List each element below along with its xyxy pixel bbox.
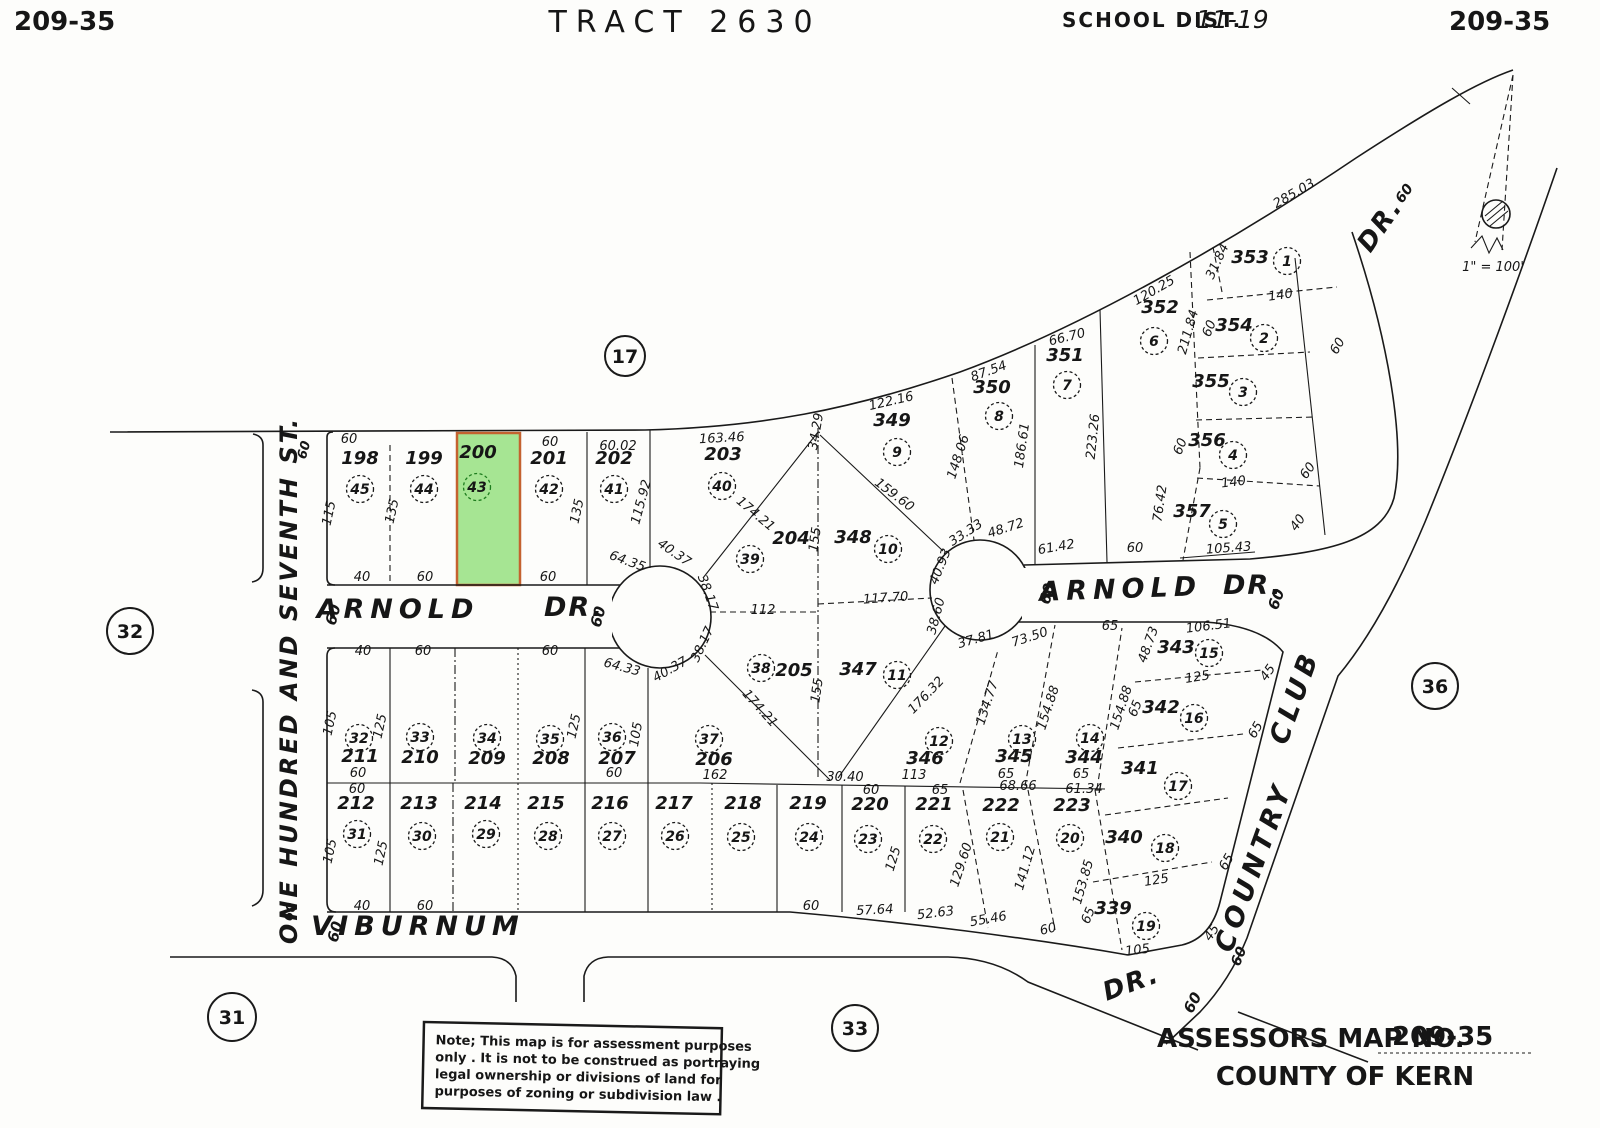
parcel-216-number: 216 (591, 793, 629, 814)
dimension-label: 115.92 (628, 478, 654, 526)
dimension-label: 140 (1220, 474, 1246, 492)
dimension-label: 64.35 (607, 548, 647, 575)
street-label-club: CLUB (1264, 646, 1327, 749)
section-marker-31-label: 31 (219, 1007, 245, 1029)
parcel-212-number: 212 (337, 793, 375, 814)
dimension-label: 125 (371, 713, 391, 740)
dimension-label: 60 (1038, 920, 1058, 939)
lot-36-label: 36 (602, 730, 622, 746)
dimension-label: 154.88 (1035, 684, 1063, 732)
dimension-label: 40 (354, 570, 371, 585)
parcel-200-number[interactable]: 200 (459, 442, 497, 463)
section-marker-17-label: 17 (612, 346, 638, 368)
parcel-214-number: 214 (464, 793, 502, 814)
dimension-label: 60 (415, 644, 432, 659)
lot-21-label: 21 (990, 830, 1009, 846)
dimension-label: 125 (883, 845, 905, 873)
dimension-label: 174.21 (733, 494, 777, 535)
parcel-223-number: 223 (1053, 795, 1091, 816)
tract-boundary (110, 70, 1513, 432)
parcel-352-number: 352 (1141, 297, 1179, 318)
dimension-label: 162 (703, 768, 728, 783)
dimension-label: 40 (1287, 512, 1309, 534)
dimension-label: 106.51 (1185, 616, 1232, 636)
street-label-one-hundred-and-seventh-st-: ONE HUNDRED AND SEVENTH ST. (275, 416, 303, 944)
section-marker-36-label: 36 (1422, 676, 1448, 698)
lot-14-label: 14 (1080, 731, 1099, 747)
lot-45-label: 45 (349, 482, 370, 498)
section-marker-33-label: 33 (842, 1018, 868, 1040)
lot-1-label: 1 (1282, 254, 1292, 270)
lot-20-label: 20 (1060, 831, 1080, 847)
street-label-dr-: DR. (1099, 959, 1164, 1007)
parcel-351-number: 351 (1046, 345, 1084, 366)
parcel-201-number: 201 (530, 448, 568, 469)
parcel-349-number: 349 (873, 410, 911, 431)
parcel-206-number: 206 (695, 749, 733, 770)
parcel-341-number: 341 (1121, 758, 1159, 779)
dimension-label: 60 (803, 899, 820, 914)
lot-9-label: 9 (892, 445, 902, 461)
dimension-label: 148.06 (945, 433, 973, 481)
dimension-label: 40 (355, 644, 372, 659)
dimension-label: 38.17 (694, 573, 721, 614)
lot-16-label: 16 (1184, 711, 1204, 727)
dimension-label: 37.81 (956, 627, 996, 652)
lot-15-label: 15 (1199, 646, 1219, 662)
dimension-label: 34.29 (806, 412, 827, 451)
lot-17-label: 17 (1168, 779, 1188, 795)
dimension-label: 60 (540, 570, 557, 585)
parcel-353-number: 353 (1231, 247, 1269, 268)
lot-34-label: 34 (477, 731, 496, 747)
dimension-label: 68.66 (999, 779, 1036, 794)
dimension-label: 30.40 (826, 770, 863, 785)
lot-2-label: 2 (1259, 331, 1269, 347)
lot-10-label: 10 (878, 542, 898, 558)
lot-32-label: 32 (349, 731, 368, 747)
parcel-208-number: 208 (532, 748, 570, 769)
parcel-210-number: 210 (401, 747, 439, 768)
assessors-map-value: 209-35 (1392, 1022, 1493, 1052)
lot-18-label: 18 (1155, 841, 1175, 857)
road-viburnum-south (170, 957, 1198, 1050)
dimension-label: 105.43 (1206, 539, 1252, 557)
dimension-label: 38.60 (925, 596, 949, 636)
header-map-no-left: 209-35 (14, 7, 115, 37)
dimension-label: 135 (568, 498, 588, 525)
lot-25-label: 25 (731, 830, 751, 846)
scale-label: 1" = 100' (1462, 260, 1524, 275)
header-map-no-right: 209-35 (1449, 7, 1550, 37)
parcel-340-number: 340 (1105, 827, 1143, 848)
road-arnold-east-top (1024, 232, 1398, 565)
lot-26-label: 26 (665, 829, 685, 845)
parcel-354-number: 354 (1215, 315, 1253, 336)
lot-30-label: 30 (412, 829, 432, 845)
parcel-219-number: 219 (789, 793, 827, 814)
lot-11-label: 11 (887, 668, 906, 684)
parcel-222-number: 222 (982, 795, 1020, 816)
parcel-217-number: 217 (655, 793, 693, 814)
dimension-label: 76.42 (1151, 484, 1171, 523)
parcel-339-number: 339 (1094, 898, 1132, 919)
dimension-label: 211.84 (1175, 308, 1202, 356)
parcel-209-number: 209 (468, 748, 506, 769)
parcel-220-number: 220 (851, 794, 889, 815)
lot-19-label: 19 (1136, 919, 1156, 935)
lot-39-label: 39 (740, 552, 760, 568)
lot-31-label: 31 (347, 827, 366, 843)
parcel-356-number: 356 (1188, 430, 1226, 451)
parcel-199-number: 199 (405, 448, 443, 469)
lot-40-label: 40 (711, 479, 732, 495)
parcel-346-number: 346 (906, 748, 944, 769)
lot-6-label: 6 (1149, 334, 1159, 350)
section-marker-32-label: 32 (117, 621, 143, 643)
lot-28-label: 28 (538, 829, 558, 845)
dimension-label: 38.17 (688, 624, 718, 665)
dimension-label: 60 (1327, 335, 1348, 357)
dimension-label: 61.42 (1037, 537, 1076, 558)
map-svg: 1" = 100' 209-35 TRACT 2630 SCHOOL DIST.… (0, 0, 1600, 1128)
dimension-label: 285.03 (1271, 176, 1318, 212)
street-label-60: 60 (295, 439, 314, 460)
lot-44-label: 44 (413, 482, 433, 498)
street-label-60: 60 (1180, 989, 1206, 1016)
dimension-label: 176.32 (905, 674, 947, 717)
dimension-label: 125 (565, 713, 585, 740)
lot-23-label: 23 (858, 832, 877, 848)
parcel-205-number: 205 (775, 660, 813, 681)
dimension-label: 55.46 (969, 909, 1008, 930)
dimension-label: 174.21 (739, 687, 781, 731)
parcel-347-number: 347 (839, 659, 877, 680)
dimension-label: 60 (341, 432, 358, 447)
lot-8-label: 8 (994, 409, 1004, 425)
dimension-label: 31.84 (1203, 241, 1232, 281)
dimension-label: 125 (1143, 871, 1170, 890)
parcel-343-number: 343 (1157, 637, 1195, 658)
parcel-348-number: 348 (834, 527, 872, 548)
dimension-label: 105 (1124, 942, 1150, 960)
dimension-label: 60 (350, 766, 367, 781)
dimension-label: 40.37 (650, 654, 690, 686)
dimension-label: 115 (320, 500, 340, 527)
dimension-label: 155 (808, 677, 826, 704)
lot-13-label: 13 (1012, 732, 1031, 748)
dimension-label: 159.60 (871, 476, 916, 515)
parcel-221-number: 221 (915, 794, 953, 815)
dimension-label: 33.33 (946, 517, 985, 550)
dimension-label: 64.33 (602, 656, 642, 680)
dimension-label: 73.50 (1010, 625, 1050, 651)
dimension-label: 52.63 (916, 904, 955, 923)
lot-38-label: 38 (751, 661, 771, 677)
parcel-342-number: 342 (1142, 697, 1180, 718)
parcel-202-number: 202 (595, 448, 633, 469)
lot-35-label: 35 (540, 732, 560, 748)
dimension-label: 135 (383, 498, 403, 525)
dimension-label: 65 (1102, 619, 1119, 634)
parcel-213-number: 213 (400, 793, 438, 814)
lot-37-label: 37 (699, 732, 719, 748)
svg-text:purposes of zoning or subdivis: purposes of zoning or subdivision law . (434, 1084, 721, 1105)
dimension-label: 186.61 (1012, 422, 1033, 469)
parcel-355-number: 355 (1192, 371, 1230, 392)
dimension-label: 141.12 (1012, 844, 1039, 892)
lot-29-label: 29 (476, 827, 496, 843)
dimension-label: 40.93 (927, 547, 955, 587)
dimension-label: 134.77 (974, 678, 1003, 727)
dimension-label: 60 (1297, 460, 1319, 482)
dimension-label: 140 (1267, 286, 1294, 304)
lot-43-label[interactable]: 43 (466, 480, 486, 496)
dimension-label: 105 (321, 710, 341, 737)
dimension-label: 48.72 (986, 516, 1026, 542)
parcel-207-number: 207 (598, 748, 636, 769)
parcel-215-number: 215 (527, 793, 565, 814)
dimension-label: 60 (417, 570, 434, 585)
street-label-arnold: ARNOLD (1037, 571, 1203, 608)
lot-24-label: 24 (799, 830, 818, 846)
lot-4-label: 4 (1227, 448, 1238, 464)
parcel-211-number: 211 (341, 746, 379, 767)
lot-22-label: 22 (923, 832, 942, 848)
lot-7-label: 7 (1062, 378, 1072, 394)
parcel-203-number: 203 (704, 444, 742, 465)
dimension-label: 60 (542, 644, 559, 659)
dimension-label: 113 (902, 768, 927, 783)
dimension-label: 223.26 (1084, 413, 1104, 460)
dimension-label: 112 (751, 603, 776, 618)
dimension-label: 129.60 (948, 841, 976, 889)
north-arrow (1452, 75, 1513, 253)
lot-33-label: 33 (410, 730, 429, 746)
lot-41-label: 41 (603, 482, 623, 498)
lot-42-label: 42 (538, 482, 558, 498)
parcel-204-number: 204 (772, 528, 810, 549)
dimension-label: 57.64 (856, 902, 894, 919)
dimension-label: 105 (627, 721, 646, 748)
parcel-350-number: 350 (973, 377, 1011, 398)
tract-title: TRACT 2630 (547, 5, 821, 40)
dimension-label: 65 (1216, 851, 1237, 873)
parcel-218-number: 218 (724, 793, 762, 814)
school-dist-value: 11-19 (1196, 5, 1269, 34)
dimension-label: 117.70 (863, 589, 909, 607)
road-107th-west-edge (252, 434, 263, 906)
county-label: COUNTY OF KERN (1216, 1062, 1474, 1092)
assessor-map-page: 1" = 100' 209-35 TRACT 2630 SCHOOL DIST.… (0, 0, 1600, 1128)
lot-5-label: 5 (1218, 517, 1228, 533)
dimension-label: 125 (1184, 668, 1211, 687)
parcel-198-number: 198 (341, 448, 379, 469)
lot-27-label: 27 (602, 829, 622, 845)
lot-3-label: 3 (1238, 385, 1248, 401)
dimension-label: 125 (372, 840, 392, 867)
lot-12-label: 12 (929, 734, 948, 750)
dimension-label: 65 (1073, 767, 1090, 782)
dimension-label: 105 (321, 838, 341, 865)
dimension-label: 60 (1127, 541, 1144, 556)
note-box: Note; This map is for assessment purpose… (422, 1022, 761, 1115)
parcel-357-number: 357 (1173, 501, 1211, 522)
